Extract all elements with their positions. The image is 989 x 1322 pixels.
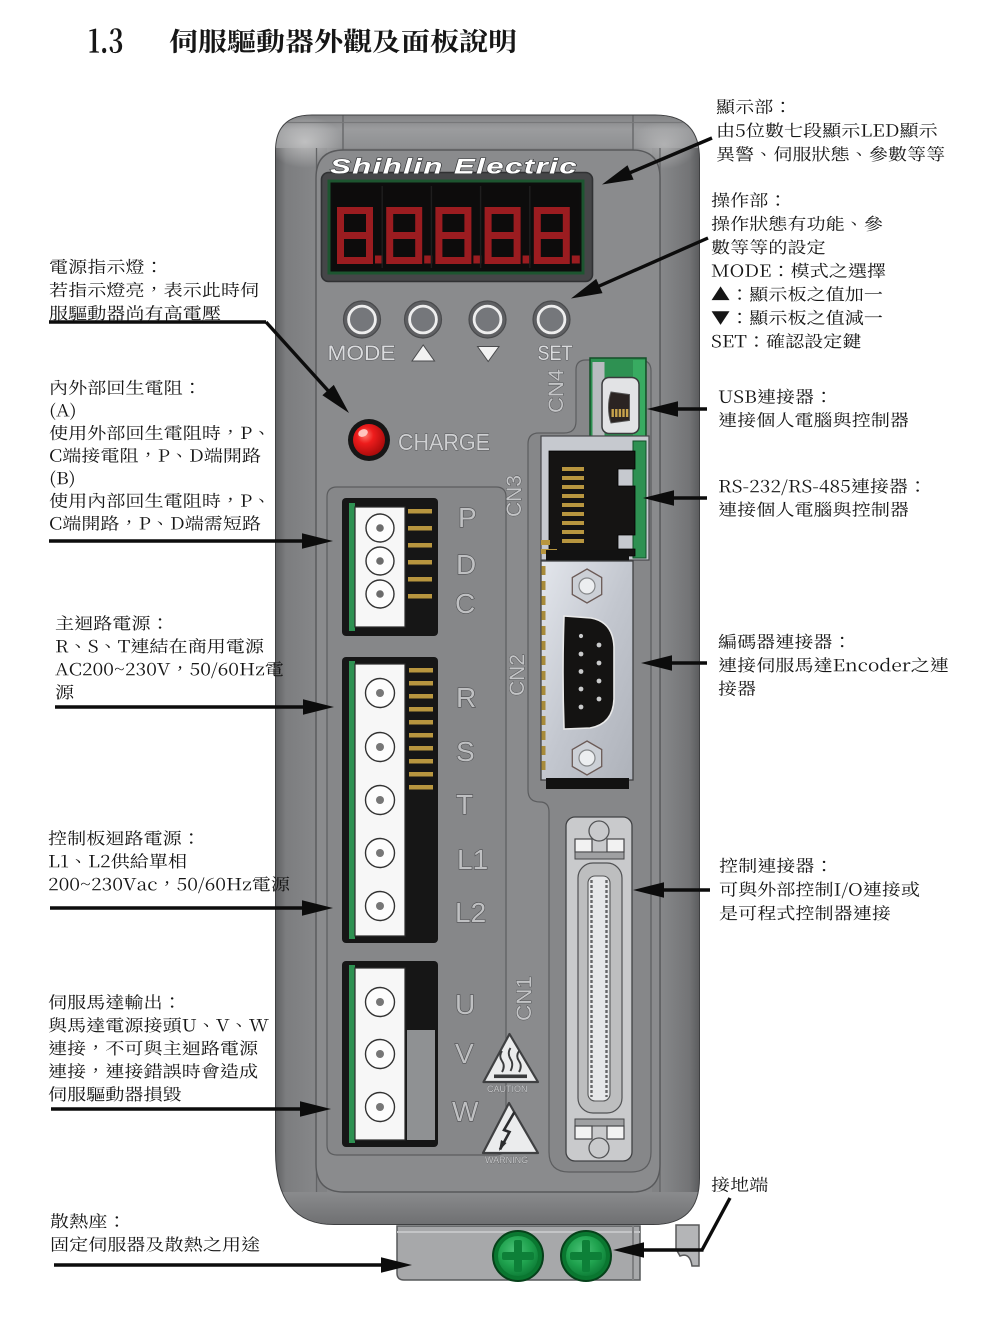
svg-text:MODE: MODE: [328, 342, 396, 365]
svg-text:CN4: CN4: [545, 369, 568, 413]
svg-text:P: P: [458, 502, 477, 533]
svg-text:WARNING: WARNING: [485, 1155, 528, 1165]
svg-text:D: D: [456, 549, 476, 580]
svg-text:CN2: CN2: [506, 654, 529, 696]
svg-text:T: T: [456, 789, 473, 820]
svg-text:U: U: [455, 989, 475, 1020]
svg-text:R: R: [456, 682, 476, 713]
svg-text:SET: SET: [538, 342, 573, 365]
svg-text:C: C: [455, 588, 475, 619]
svg-text:W: W: [452, 1096, 479, 1127]
svg-text:L2: L2: [455, 897, 486, 928]
svg-text:CAUTION: CAUTION: [487, 1084, 528, 1094]
svg-text:V: V: [455, 1038, 474, 1069]
svg-text:S: S: [456, 736, 475, 767]
svg-text:CN3: CN3: [503, 475, 526, 517]
svg-text:CHARGE: CHARGE: [398, 429, 490, 455]
svg-text:CN1: CN1: [513, 976, 536, 1021]
svg-text:L1: L1: [457, 844, 488, 875]
svg-text:Shihlin Electric: Shihlin Electric: [330, 155, 578, 179]
